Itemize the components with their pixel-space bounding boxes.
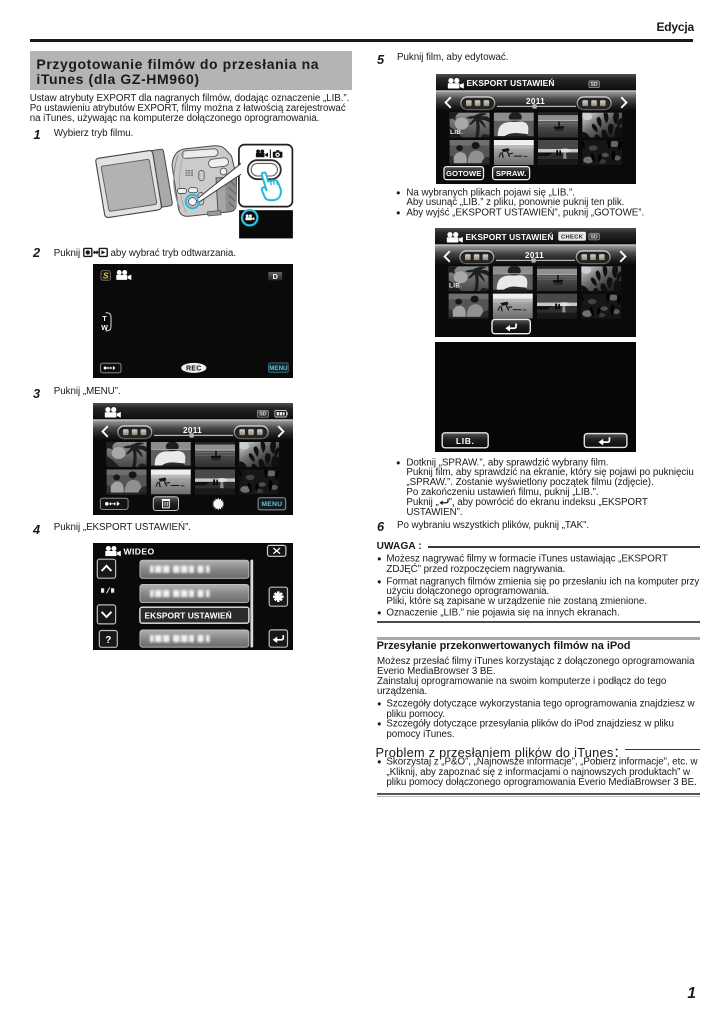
svg-text:REC: REC	[186, 366, 202, 373]
svg-text:W: W	[101, 325, 108, 332]
svg-text:EKSPORT USTAWIEŃ: EKSPORT USTAWIEŃ	[145, 610, 232, 621]
svg-text:CHECK: CHECK	[561, 234, 584, 240]
svg-text:WIDEO: WIDEO	[124, 547, 155, 557]
svg-text:SD: SD	[591, 82, 598, 88]
svg-text:GOTOWE: GOTOWE	[446, 169, 481, 178]
svg-text:MENU: MENU	[269, 365, 288, 372]
svg-text:T: T	[102, 316, 107, 323]
svg-text:MENU: MENU	[261, 501, 282, 508]
svg-text:SD: SD	[259, 412, 266, 418]
svg-text:EKSPORT USTAWIEŃ: EKSPORT USTAWIEŃ	[467, 77, 555, 88]
svg-text:LIB.: LIB.	[456, 436, 475, 446]
svg-text:D: D	[272, 272, 278, 281]
svg-text:SPRAW.: SPRAW.	[496, 169, 527, 178]
svg-text:EKSPORT USTAWIEŃ: EKSPORT USTAWIEŃ	[466, 231, 554, 242]
svg-text:LIB.: LIB.	[450, 129, 463, 136]
svg-text:?: ?	[105, 635, 111, 646]
svg-text:SD: SD	[591, 234, 598, 240]
svg-text:LIB.: LIB.	[449, 282, 462, 289]
svg-text:S: S	[103, 270, 109, 280]
